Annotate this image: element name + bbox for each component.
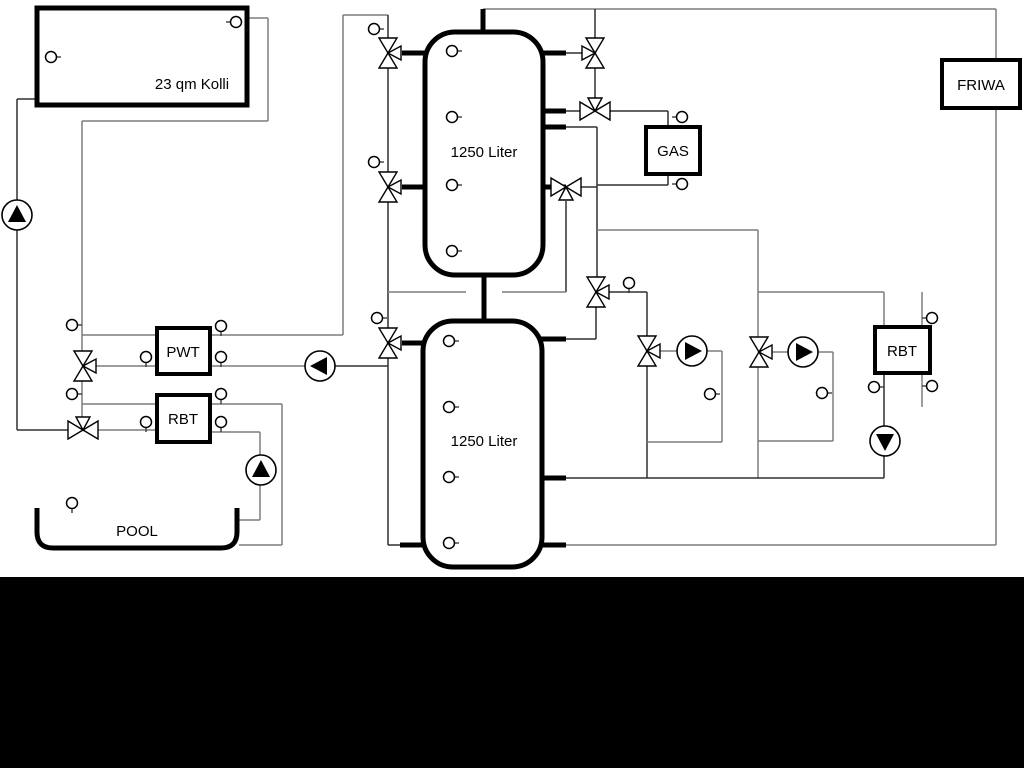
gas-boiler-box-label: GAS: [657, 143, 689, 160]
pool-label: POOL: [116, 523, 158, 540]
diagram-svg: 23 qm Kolli1250 Liter1250 LiterGASFRIWAP…: [0, 0, 1024, 768]
temperature-sensor-icon: [369, 24, 380, 35]
temperature-sensor-icon: [46, 52, 57, 63]
temperature-sensor-icon: [927, 381, 938, 392]
temperature-sensor-icon: [447, 112, 458, 123]
temperature-sensor-icon: [869, 382, 880, 393]
temperature-sensor-icon: [817, 388, 828, 399]
temperature-sensor-icon: [67, 389, 78, 400]
temperature-sensor-icon: [447, 46, 458, 57]
temperature-sensor-icon: [444, 402, 455, 413]
temperature-sensor-icon: [444, 336, 455, 347]
temperature-sensor-icon: [927, 313, 938, 324]
solar-collector-box-label: 23 qm Kolli: [155, 76, 229, 93]
temperature-sensor-icon: [67, 498, 78, 509]
friwa-station-box-label: FRIWA: [957, 77, 1005, 94]
temperature-sensor-icon: [216, 389, 227, 400]
hydraulic-schematic: 23 qm Kolli1250 Liter1250 LiterGASFRIWAP…: [0, 0, 1024, 768]
buffer-tank-2-label: 1250 Liter: [451, 433, 518, 450]
temperature-sensor-icon: [624, 278, 635, 289]
temperature-sensor-icon: [216, 417, 227, 428]
bottom-black-band: [0, 577, 1024, 768]
temperature-sensor-icon: [677, 179, 688, 190]
temperature-sensor-icon: [67, 320, 78, 331]
pwt-heat-exchanger-box-label: PWT: [166, 344, 199, 361]
temperature-sensor-icon: [447, 246, 458, 257]
temperature-sensor-icon: [677, 112, 688, 123]
temperature-sensor-icon: [231, 17, 242, 28]
temperature-sensor-icon: [372, 313, 383, 324]
temperature-sensor-icon: [216, 321, 227, 332]
temperature-sensor-icon: [141, 352, 152, 363]
temperature-sensor-icon: [141, 417, 152, 428]
temperature-sensor-icon: [216, 352, 227, 363]
temperature-sensor-icon: [447, 180, 458, 191]
rbt-left-box-label: RBT: [168, 411, 198, 428]
temperature-sensor-icon: [444, 472, 455, 483]
temperature-sensor-icon: [369, 157, 380, 168]
temperature-sensor-icon: [444, 538, 455, 549]
temperature-sensor-icon: [705, 389, 716, 400]
rbt-right-box-label: RBT: [887, 343, 917, 360]
buffer-tank-1-label: 1250 Liter: [451, 144, 518, 161]
